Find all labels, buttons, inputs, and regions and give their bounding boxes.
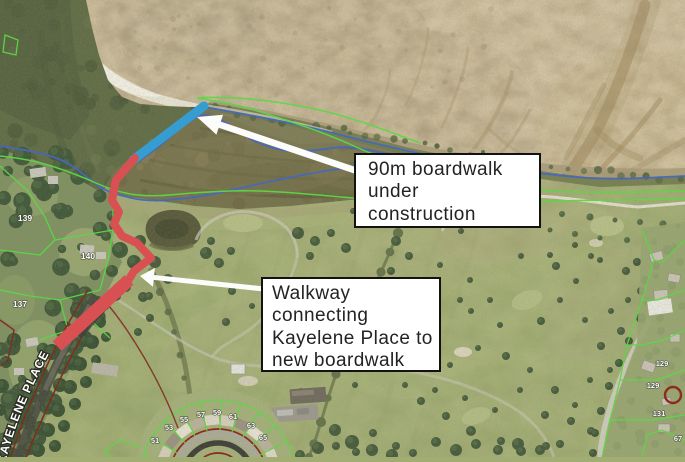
svg-text:131: 131 — [653, 409, 666, 418]
svg-text:65: 65 — [259, 433, 267, 442]
svg-text:59: 59 — [213, 408, 221, 417]
svg-text:57: 57 — [197, 410, 205, 419]
svg-text:137: 137 — [13, 299, 27, 309]
svg-text:129: 129 — [647, 381, 660, 390]
svg-text:63: 63 — [247, 421, 255, 430]
svg-text:139: 139 — [18, 213, 32, 223]
svg-text:55: 55 — [180, 415, 188, 424]
svg-text:53: 53 — [165, 423, 173, 432]
svg-text:51: 51 — [151, 436, 159, 445]
svg-text:140: 140 — [81, 251, 95, 261]
svg-text:67: 67 — [674, 434, 682, 443]
svg-text:61: 61 — [229, 412, 237, 421]
svg-text:129: 129 — [656, 359, 669, 368]
